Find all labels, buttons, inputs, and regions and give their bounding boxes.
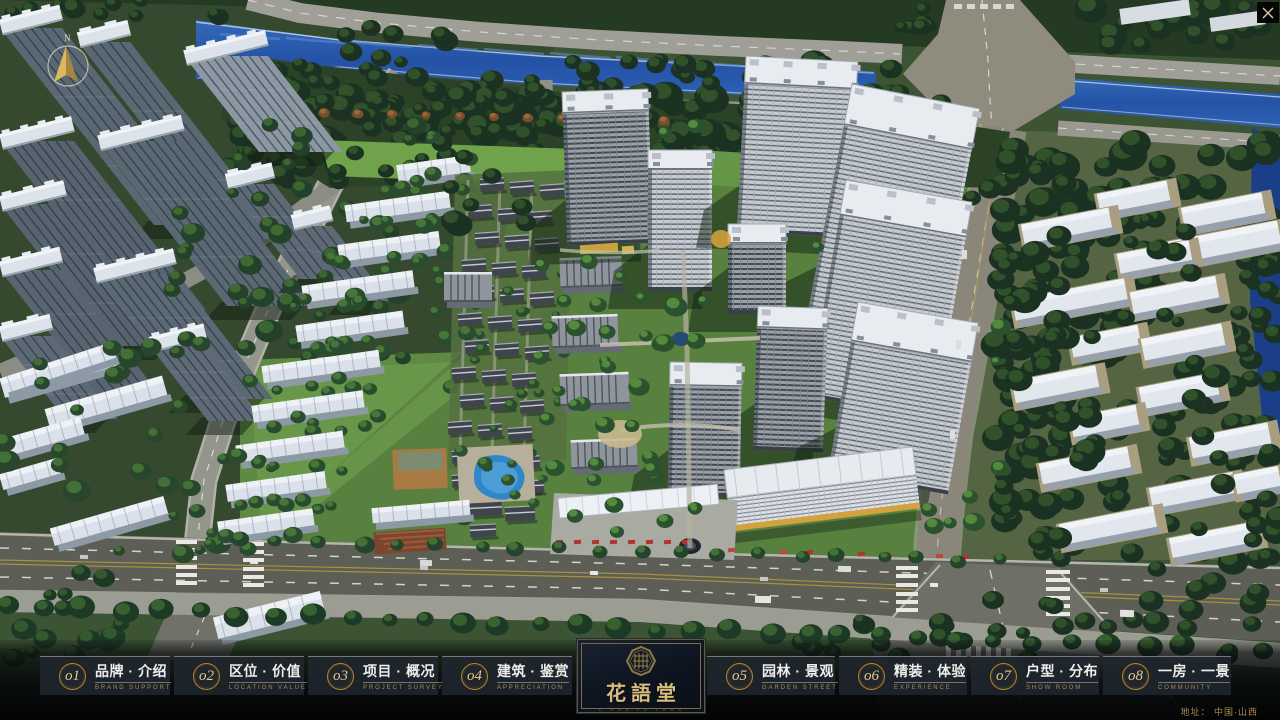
svg-text:N: N xyxy=(64,33,71,43)
